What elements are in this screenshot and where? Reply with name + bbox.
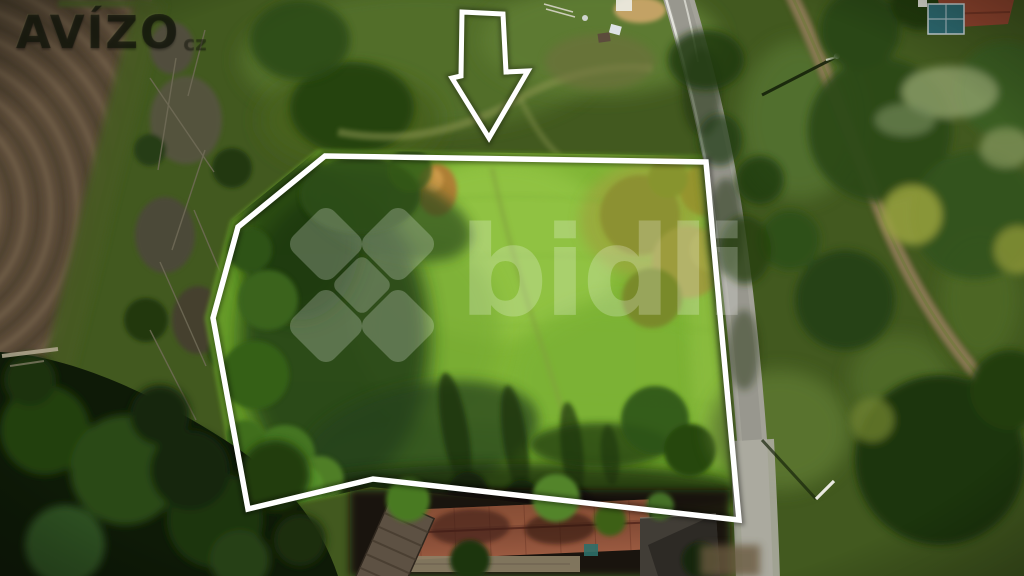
aerial-photo: AVÍZOcz bidli <box>0 0 1024 576</box>
plot-boundary <box>213 156 739 520</box>
plot-boundary-shadow <box>213 156 739 520</box>
annotation-overlay <box>0 0 1024 576</box>
